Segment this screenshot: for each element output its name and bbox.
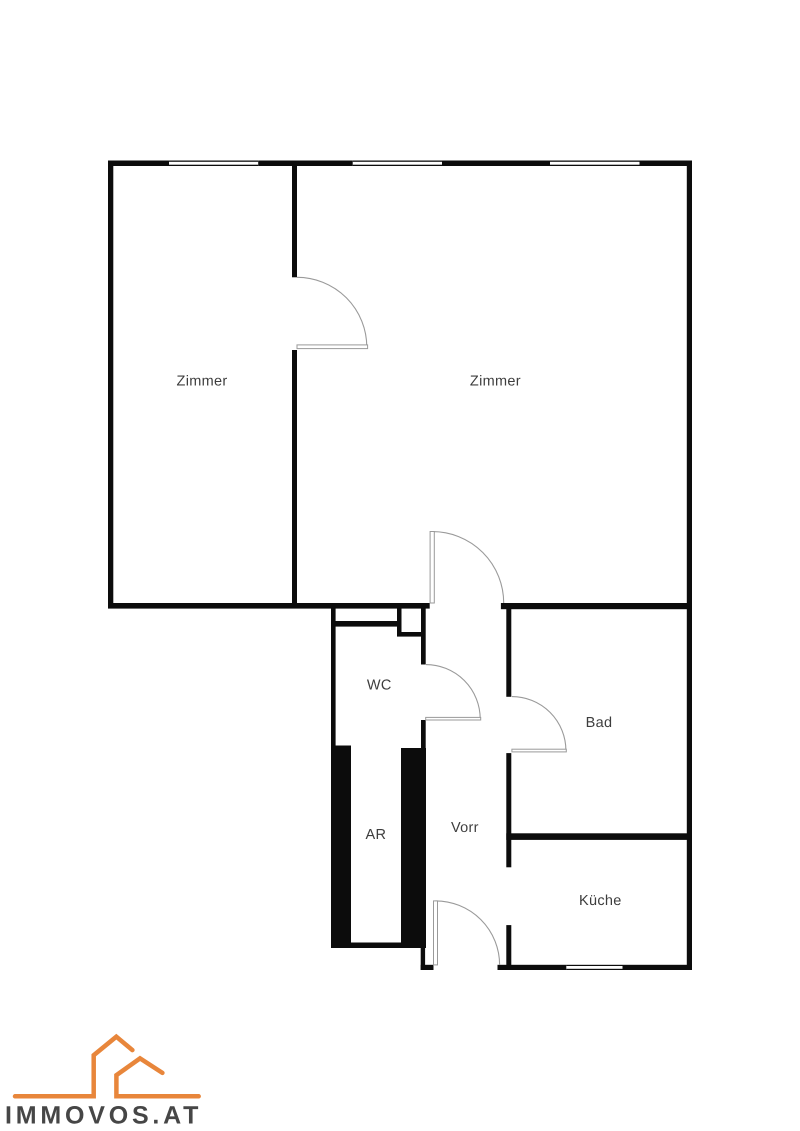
svg-text:IMMOVOS.AT: IMMOVOS.AT — [5, 1102, 202, 1130]
svg-text:Küche: Küche — [579, 893, 622, 909]
svg-text:Zimmer: Zimmer — [470, 374, 521, 390]
svg-text:Zimmer: Zimmer — [177, 374, 228, 390]
svg-text:Vorr: Vorr — [451, 820, 479, 836]
svg-text:AR: AR — [366, 827, 387, 843]
svg-text:Bad: Bad — [586, 715, 613, 731]
svg-text:WC: WC — [367, 678, 392, 694]
